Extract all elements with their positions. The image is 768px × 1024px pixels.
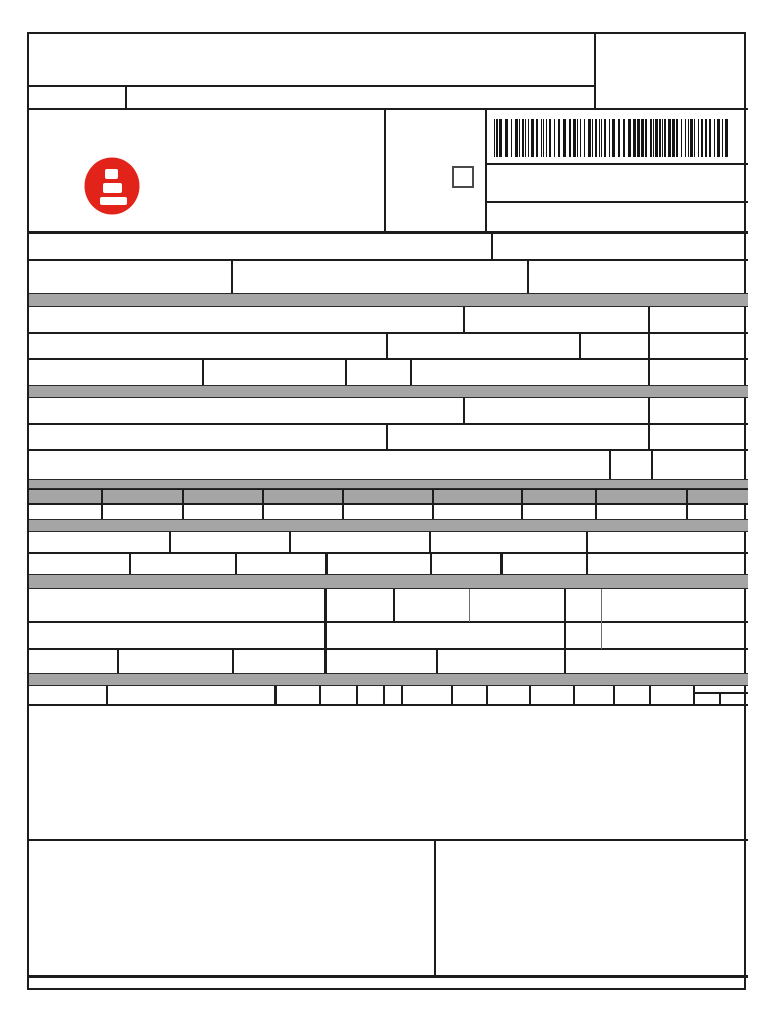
grid-line (686, 489, 688, 519)
grid-line (586, 532, 588, 574)
grid-line (469, 589, 470, 622)
grid-line (29, 449, 748, 451)
grid-line (169, 532, 171, 554)
grid-line (648, 398, 650, 450)
grid-line (573, 686, 575, 705)
grid-line (345, 358, 347, 385)
grid-line (232, 648, 234, 673)
grid-line (384, 108, 386, 233)
grid-line (486, 163, 748, 165)
brand-logo-icon (84, 157, 140, 215)
grid-line (649, 686, 651, 705)
grid-line (463, 307, 465, 333)
grid-line (410, 358, 412, 385)
grid-line (356, 686, 358, 705)
document-type-checkbox (452, 166, 474, 188)
grid-line (694, 692, 748, 694)
grid-line (648, 307, 650, 385)
grid-line (386, 332, 388, 359)
grid-line (579, 332, 581, 359)
grid-line (609, 449, 611, 479)
grid-line (342, 489, 344, 519)
grid-line (274, 686, 277, 705)
grid-line (29, 552, 748, 554)
grid-line (29, 621, 748, 623)
grid-line (529, 686, 531, 705)
grid-line (595, 489, 597, 519)
grid-line (564, 589, 566, 673)
grid-line (386, 423, 388, 450)
grid-line (106, 686, 108, 705)
grid-line (182, 489, 184, 519)
grid-line (117, 648, 119, 673)
tax-calc-header-cells (29, 489, 748, 504)
grid-line (491, 231, 493, 261)
grid-line (601, 589, 602, 649)
grid-line (324, 589, 327, 673)
grid-line (231, 259, 233, 294)
grid-line (289, 532, 291, 554)
barcode-image (494, 119, 729, 157)
tax-calculation-band (29, 479, 748, 489)
grid-line (262, 489, 264, 519)
grid-line (29, 648, 748, 650)
grid-line (693, 686, 695, 705)
grid-line (325, 552, 328, 574)
grid-line (393, 589, 395, 622)
items-band (29, 673, 748, 686)
grid-line (101, 489, 103, 519)
grid-line (29, 85, 595, 87)
tax-totals-band (29, 519, 748, 532)
grid-line (613, 686, 615, 705)
recipient-sender-band (29, 293, 748, 307)
grid-line (651, 449, 653, 479)
grid-line (29, 839, 748, 841)
grid-line (429, 532, 431, 554)
grid-line (521, 489, 523, 519)
grid-line (594, 34, 596, 109)
grid-line (485, 108, 487, 233)
grid-line (432, 489, 434, 519)
grid-line (29, 975, 748, 978)
grid-line (29, 259, 748, 261)
grid-line (463, 398, 465, 424)
grid-line (486, 686, 488, 705)
grid-line (401, 686, 403, 705)
grid-line (434, 840, 436, 976)
grid-line (235, 552, 237, 574)
grid-line (29, 332, 748, 334)
grid-line (29, 231, 748, 234)
grid-line (29, 358, 748, 360)
form-sheet (27, 32, 746, 990)
grid-line (29, 503, 748, 505)
grid-line (500, 552, 503, 574)
grid-line (719, 693, 721, 705)
grid-line (202, 358, 204, 385)
grid-line (451, 686, 453, 705)
invoice-bill-band (29, 385, 748, 398)
grid-line (430, 552, 432, 574)
grid-line (383, 686, 385, 705)
grid-line (129, 552, 131, 574)
grid-line (29, 108, 748, 110)
grid-line (319, 686, 321, 705)
carrier-volumes-band (29, 574, 748, 589)
grid-line (527, 259, 529, 294)
grid-line (486, 201, 748, 203)
grid-line (125, 85, 127, 109)
grid-line (436, 648, 438, 673)
grid-line (29, 704, 748, 706)
grid-line (29, 423, 748, 425)
